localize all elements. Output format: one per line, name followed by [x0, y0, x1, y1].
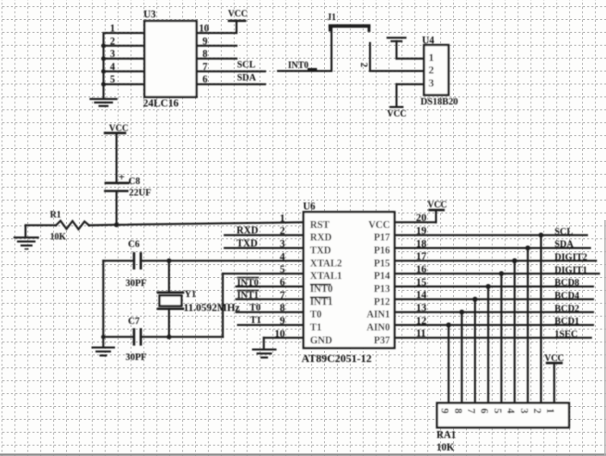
svg-text:INT0: INT0 — [288, 60, 309, 70]
svg-text:U3: U3 — [144, 10, 156, 21]
svg-text:2: 2 — [358, 63, 368, 68]
svg-text:RXD: RXD — [310, 233, 332, 244]
svg-text:+: + — [119, 172, 125, 184]
svg-text:RA1: RA1 — [437, 430, 456, 441]
svg-text:BCD1: BCD1 — [555, 317, 580, 327]
svg-text:INT0: INT0 — [310, 284, 333, 295]
svg-text:5: 5 — [280, 265, 285, 276]
svg-text:4: 4 — [505, 408, 516, 414]
svg-text:7: 7 — [203, 62, 208, 73]
svg-text:2: 2 — [531, 408, 542, 413]
svg-text:22UF: 22UF — [129, 189, 151, 199]
svg-text:C7: C7 — [128, 317, 140, 327]
svg-text:BCD2: BCD2 — [555, 304, 580, 314]
svg-text:Y1: Y1 — [185, 290, 197, 300]
svg-text:8: 8 — [203, 49, 208, 60]
svg-text:T0: T0 — [310, 310, 322, 321]
svg-text:TXD: TXD — [237, 238, 258, 249]
svg-text:1: 1 — [280, 213, 285, 224]
svg-text:SCL: SCL — [237, 61, 255, 71]
svg-text:P14: P14 — [374, 271, 390, 282]
svg-text:24LC16: 24LC16 — [143, 99, 179, 110]
svg-text:VCC: VCC — [109, 123, 129, 133]
svg-text:DIGIT2: DIGIT2 — [555, 253, 588, 263]
svg-text:BCD8: BCD8 — [555, 279, 580, 289]
svg-text:XTAL1: XTAL1 — [310, 271, 342, 282]
svg-text:1SEC: 1SEC — [555, 330, 578, 340]
svg-text:C8: C8 — [129, 177, 141, 187]
svg-text:U6: U6 — [303, 202, 315, 213]
svg-text:1: 1 — [110, 24, 115, 35]
svg-text:SDA: SDA — [555, 240, 574, 250]
svg-text:DS18B20: DS18B20 — [421, 98, 459, 108]
svg-text:P12: P12 — [374, 297, 390, 308]
svg-text:4: 4 — [110, 62, 115, 73]
svg-text:U4: U4 — [422, 36, 434, 47]
svg-text:30PF: 30PF — [126, 353, 147, 363]
svg-text:7: 7 — [465, 408, 476, 413]
svg-text:P37: P37 — [374, 335, 390, 346]
svg-text:TXD: TXD — [310, 246, 331, 257]
svg-text:7: 7 — [280, 290, 285, 301]
svg-text:P17: P17 — [374, 233, 390, 244]
svg-text:T0: T0 — [250, 303, 261, 313]
svg-text:1: 1 — [429, 52, 435, 64]
svg-text:SDA: SDA — [237, 73, 256, 83]
svg-text:10K: 10K — [437, 443, 455, 454]
svg-text:8: 8 — [452, 408, 463, 413]
svg-text:GND: GND — [310, 335, 332, 346]
svg-text:3: 3 — [518, 408, 529, 413]
svg-text:P16: P16 — [374, 246, 390, 257]
svg-text:5: 5 — [110, 75, 115, 86]
svg-text:R1: R1 — [50, 210, 61, 220]
svg-text:BCD4: BCD4 — [555, 292, 580, 302]
svg-text:6: 6 — [478, 408, 489, 413]
svg-text:INT1: INT1 — [237, 291, 259, 301]
svg-text:VCC: VCC — [387, 109, 407, 119]
svg-text:9: 9 — [280, 316, 285, 327]
svg-text:DIGIT1: DIGIT1 — [555, 266, 588, 276]
svg-text:5: 5 — [491, 408, 502, 413]
svg-text:RXD: RXD — [237, 226, 259, 237]
svg-text:T1: T1 — [250, 316, 261, 326]
svg-text:6: 6 — [203, 75, 208, 86]
svg-text:3: 3 — [280, 239, 285, 250]
svg-text:30PF: 30PF — [126, 279, 147, 289]
svg-text:11.0592MHz: 11.0592MHz — [184, 303, 241, 314]
svg-text:8: 8 — [280, 303, 285, 314]
svg-text:1: 1 — [544, 408, 555, 413]
svg-text:10: 10 — [199, 24, 209, 35]
svg-text:XTAL2: XTAL2 — [310, 258, 342, 269]
svg-text:4: 4 — [280, 252, 286, 263]
svg-text:3: 3 — [110, 49, 115, 60]
svg-text:T1: T1 — [310, 323, 322, 334]
svg-text:2: 2 — [110, 36, 115, 47]
svg-text:VCC: VCC — [545, 353, 565, 363]
svg-text:AIN0: AIN0 — [367, 323, 390, 334]
svg-text:6: 6 — [280, 278, 285, 289]
svg-text:AT89C2051-12: AT89C2051-12 — [302, 353, 373, 365]
svg-text:10K: 10K — [50, 232, 66, 242]
svg-text:C6: C6 — [128, 240, 140, 250]
svg-text:9: 9 — [439, 408, 450, 413]
svg-text:RST: RST — [310, 220, 330, 231]
svg-text:9: 9 — [203, 36, 208, 47]
svg-text:AIN1: AIN1 — [367, 310, 390, 321]
svg-text:3: 3 — [429, 77, 435, 89]
svg-text:VCC: VCC — [368, 220, 390, 231]
svg-text:INT1: INT1 — [310, 297, 333, 308]
svg-text:10: 10 — [275, 329, 286, 340]
svg-text:J1: J1 — [327, 12, 337, 22]
svg-text:P13: P13 — [374, 284, 390, 295]
svg-text:P15: P15 — [374, 258, 390, 269]
svg-text:2: 2 — [280, 226, 285, 237]
svg-text:SCL: SCL — [555, 227, 573, 237]
svg-text:VCC: VCC — [428, 200, 448, 210]
svg-text:INT0: INT0 — [237, 278, 259, 288]
svg-text:2: 2 — [429, 65, 435, 77]
svg-text:VCC: VCC — [228, 9, 248, 19]
